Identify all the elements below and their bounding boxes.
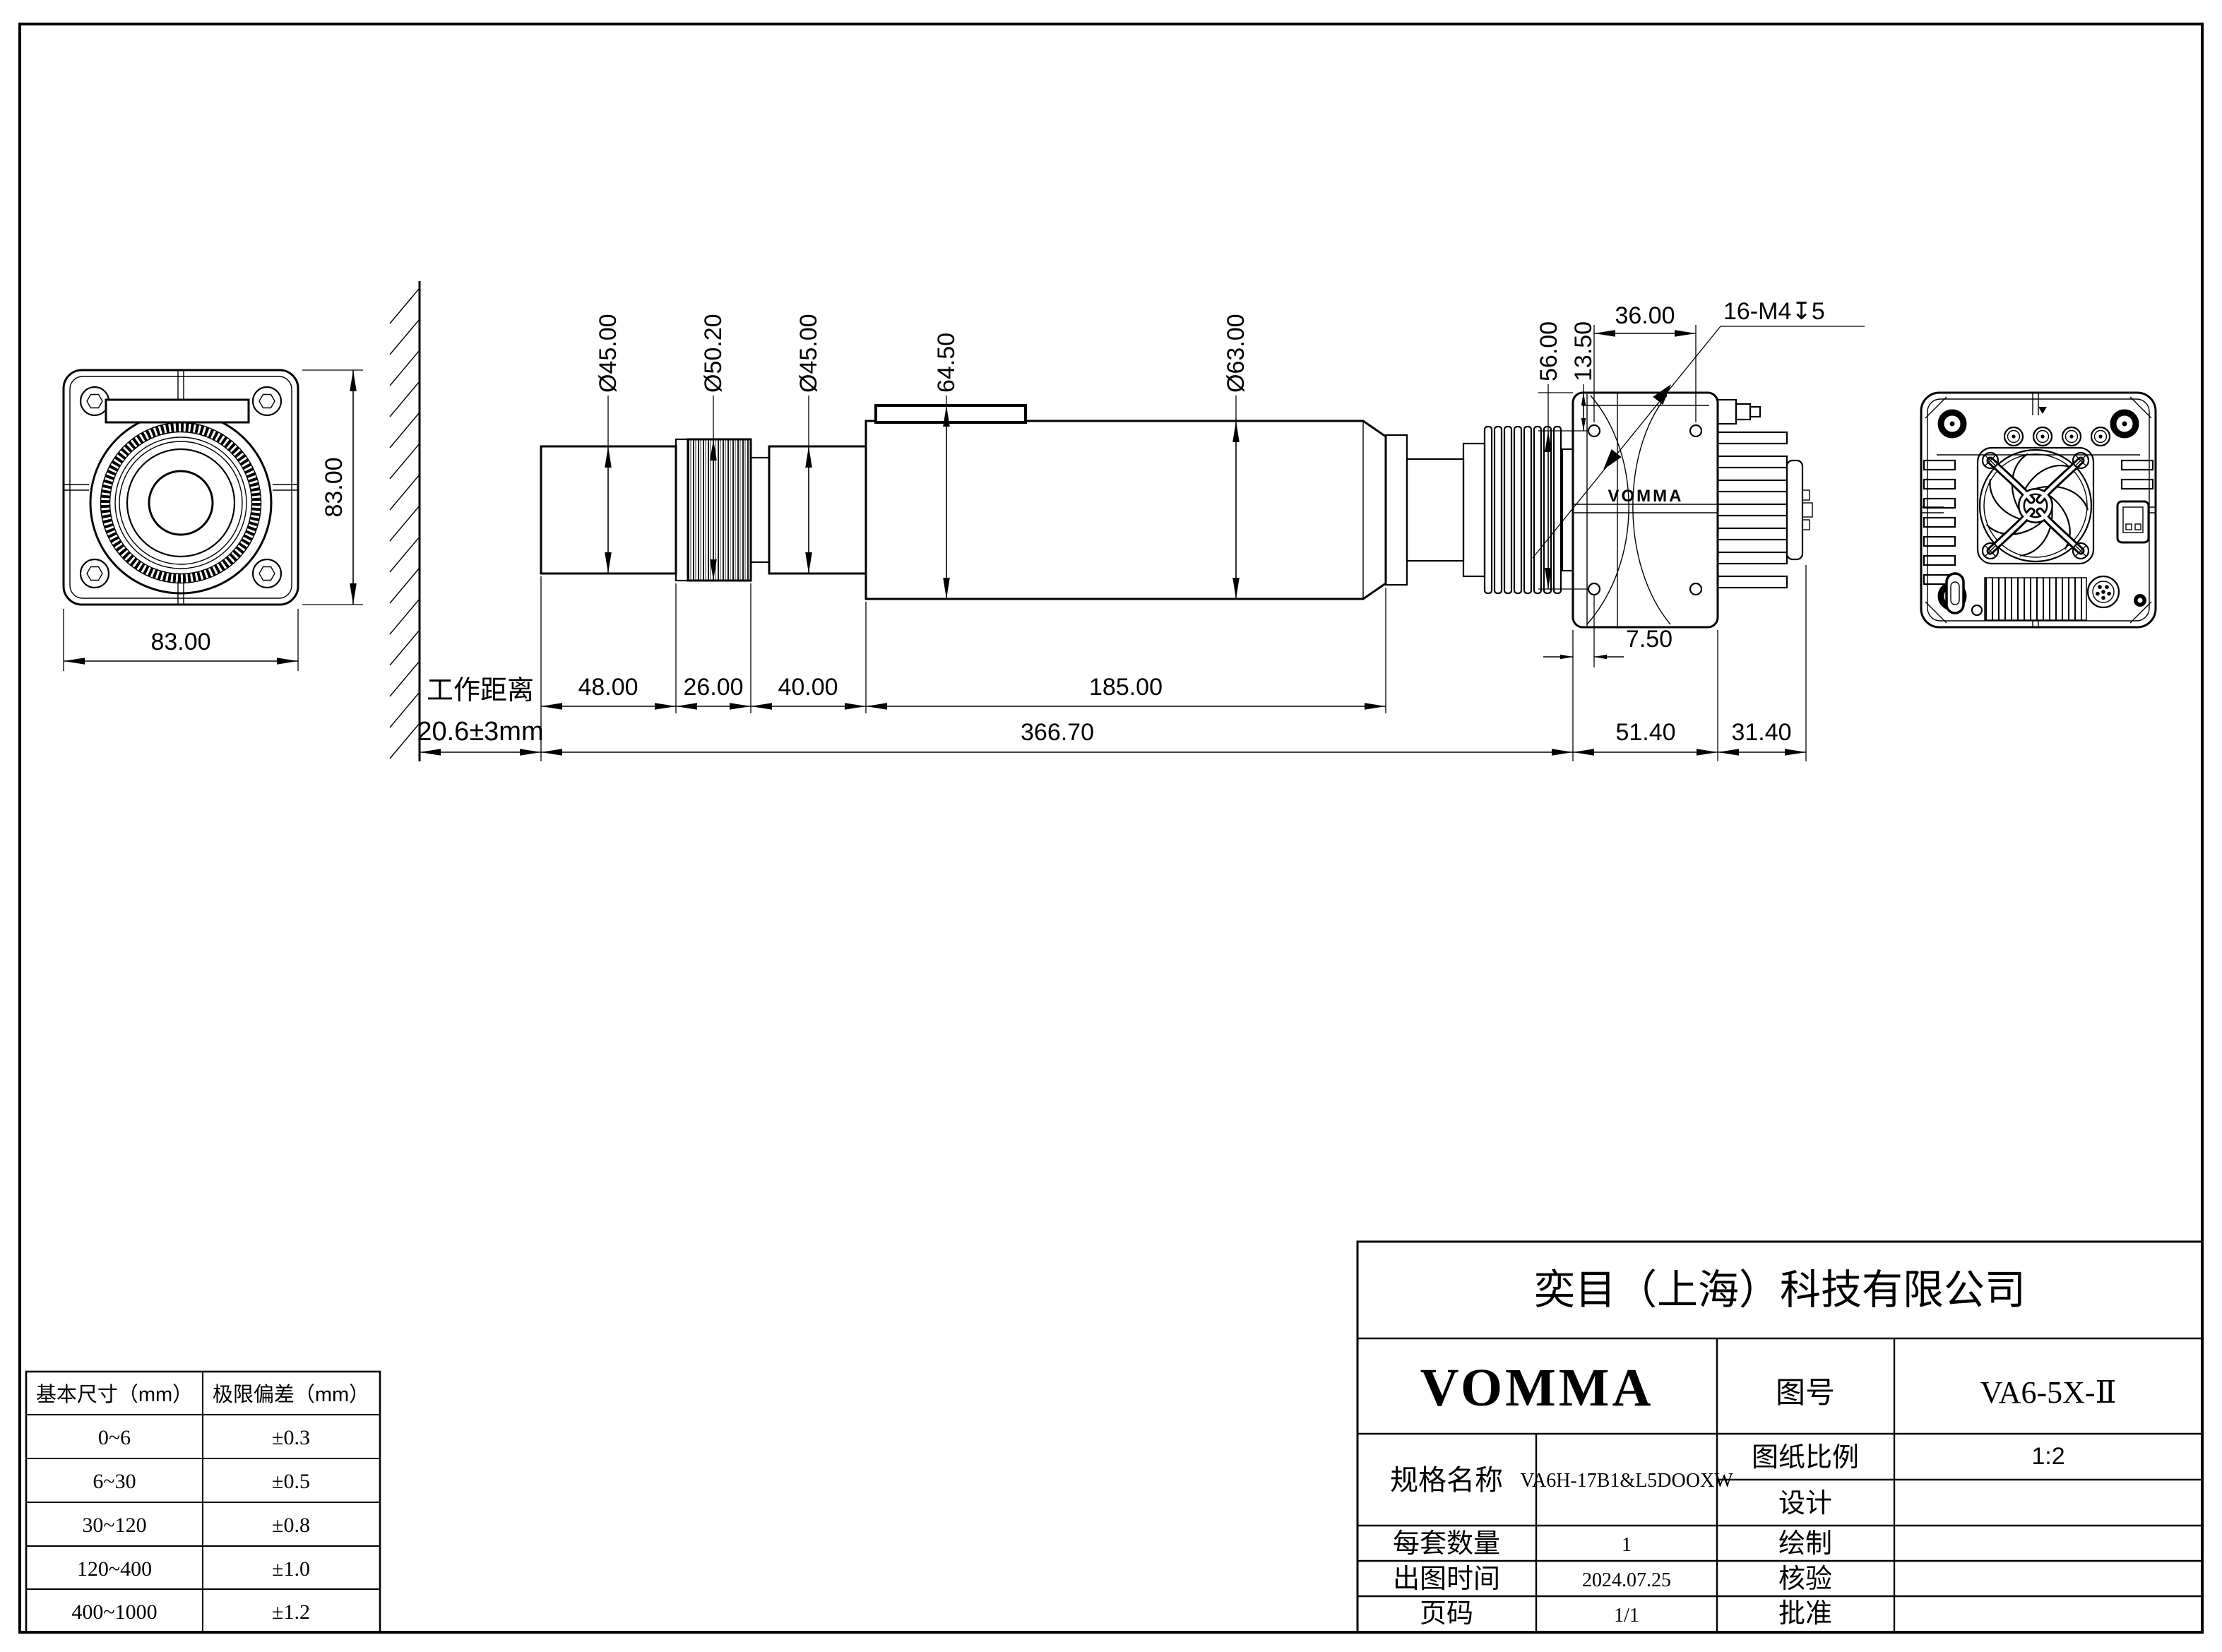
adapter-neck [1407,459,1463,561]
rear-heatsink-right [2122,460,2153,489]
front-knurled-ring [101,423,261,583]
check-label: 核验 [1778,1564,1832,1594]
dim-len-focus-ring: 26.00 [683,674,743,701]
tol-row-1-dev: ±0.5 [272,1470,310,1493]
rear-sma-connectors [2004,407,2110,446]
dim-len-heatsink: 31.40 [1731,719,1791,746]
working-distance-label: 工作距离 [427,676,534,706]
qty-value: 1 [1622,1534,1632,1556]
focus-ring-knurl [688,439,751,581]
dim-front-height: 83.00 [321,457,347,517]
side-dims-camera-holes: 56.00 13.50 36.00 [1535,302,1696,589]
scale-label: 图纸比例 [1752,1443,1859,1473]
drawing-no-value: VA6-5X-Ⅱ [1980,1375,2117,1410]
dim-dia-body: Ø63.00 [1223,314,1249,393]
focus-ring-collar [676,439,688,581]
camera-body-side [1573,393,1718,627]
side-dims-bottom-row1: 48.00 26.00 40.00 185.00 [541,576,1386,761]
camera-rear-connector-side [1787,460,1812,559]
adapter-step-ring [1463,444,1485,576]
rear-pinhole [1972,605,1982,615]
dim-len-total: 366.70 [1021,719,1094,746]
side-dims-bottom-row2: 工作距离 20.6±3mm 366.70 51.40 31.40 [417,565,1806,761]
front-lens-mount-circle [90,412,271,593]
wall-hatching [390,288,420,759]
page-value: 1/1 [1614,1605,1639,1627]
dim-hole-span: 56.00 [1535,321,1562,381]
dim-dia-lens-rear: Ø45.00 [795,314,822,393]
tolerance-table: 基本尺寸（mm） 极限偏差（mm） 0~6 ±0.3 6~30 ±0.5 30~… [26,1372,380,1632]
front-dim-height: 83.00 [302,370,363,605]
tol-row-4-dev: ±1.2 [272,1600,310,1624]
bellows [1485,427,1573,593]
tol-row-2-range: 30~120 [82,1514,146,1537]
dim-hole-pitch: 36.00 [1615,302,1675,329]
engineering-drawing-canvas: 83.00 83.00 [0,0,2222,1652]
camera-cover-curve-2 [1587,396,1629,624]
barrel-groove [751,458,769,562]
page-label: 页码 [1420,1599,1473,1629]
tol-row-2-dev: ±0.8 [272,1514,310,1537]
dim-front-width: 83.00 [150,629,210,655]
camera-head: VOMMA [1573,393,1812,627]
tol-row-3-dev: ±1.0 [272,1557,310,1581]
company-name: 奕目（上海）科技有限公司 [1534,1267,2026,1313]
approve-label: 批准 [1778,1599,1832,1629]
lens-rear-barrel [769,446,866,574]
power-connector [2117,501,2149,542]
front-top-bar [106,400,249,422]
aviation-connector [2088,576,2119,607]
design-label: 设计 [1778,1489,1832,1519]
camera-logo-side: VOMMA [1608,487,1684,506]
tol-row-3-range: 120~400 [77,1557,152,1581]
dim-height-rail: 64.50 [933,333,960,393]
orientation-triangle [2038,407,2047,414]
tol-row-0-dev: ±0.3 [272,1426,310,1449]
date-value: 2024.07.25 [1582,1569,1671,1591]
spec-label: 规格名称 [1390,1465,1503,1496]
brand-logo: VOMMA [1420,1358,1654,1418]
spec-value: VA6H-17B1&L5DOOXW [1520,1470,1733,1492]
drawing-no-label: 图号 [1776,1376,1835,1409]
dim-hole-top: 13.50 [1570,321,1597,381]
tol-header-dev: 极限偏差（mm） [213,1383,369,1406]
front-view: 83.00 83.00 [64,370,363,671]
tol-rows: 0~6 ±0.3 6~30 ±0.5 30~120 ±0.8 120~400 ±… [71,1426,310,1624]
tol-row-0-range: 0~6 [98,1426,131,1449]
scale-value: 1:2 [2031,1443,2064,1470]
dim-len-body: 185.00 [1089,674,1163,701]
tol-header-basic: 基本尺寸（mm） [36,1383,193,1406]
title-block: 奕目（上海）科技有限公司 VOMMA 图号 VA6-5X-Ⅱ 规格名称 VA6H… [1357,1242,2202,1632]
rear-heatsink-left [1924,460,1955,584]
front-lens-rings [115,437,246,569]
tol-row-1-range: 6~30 [93,1470,136,1493]
qty-label: 每套数量 [1393,1529,1500,1559]
side-view: VOMMA [390,281,1865,761]
adapter-flange [1386,435,1407,585]
mounting-rail [876,405,1026,422]
usb-c-port [1947,574,1963,613]
tol-row-4-range: 400~1000 [71,1600,157,1624]
dim-dia-lens-front: Ø45.00 [595,314,622,393]
draw-label: 绘制 [1778,1529,1832,1559]
dim-len-lens-rear: 40.00 [778,674,838,701]
rear-vent-grille [1985,578,2086,620]
dim-hole-offset: 7.50 [1626,626,1673,653]
rear-view [1921,393,2156,627]
camera-cover-curve-1 [1633,396,1670,624]
main-body [866,421,1386,599]
date-label: 出图时间 [1393,1564,1500,1594]
working-distance-value: 20.6±3mm [417,717,543,747]
thread-note: 16-M4↧5 [1723,298,1825,325]
dim-len-camera: 51.40 [1615,719,1675,746]
rear-fan [1978,448,2093,564]
camera-heatsink-side [1718,432,1787,588]
front-dim-width: 83.00 [64,609,298,671]
camera-mount-holes [1588,425,1701,595]
camera-top-connector [1718,400,1760,424]
fan-guard [1990,460,2081,551]
dim-len-lens-front: 48.00 [578,674,638,701]
dim-dia-focus-ring: Ø50.20 [700,314,727,393]
